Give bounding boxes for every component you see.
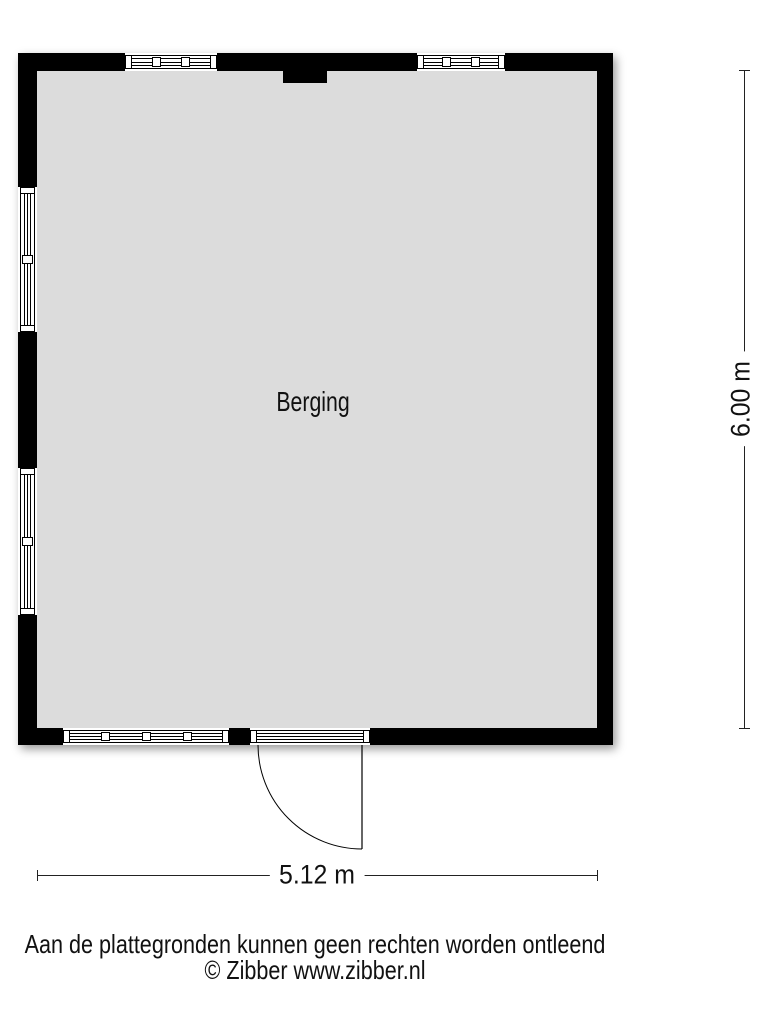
dimension-tick bbox=[37, 870, 38, 881]
window-end-cap bbox=[20, 325, 35, 332]
window-mullion bbox=[152, 57, 161, 67]
width-dimension-label: 5.12 m bbox=[270, 860, 364, 891]
door-swing-arc bbox=[258, 745, 362, 849]
window-frame bbox=[417, 55, 505, 69]
window-end-cap bbox=[222, 730, 229, 743]
dimension-tick bbox=[739, 70, 750, 71]
disclaimer-text: Aan de plattegronden kunnen geen rechten… bbox=[0, 931, 630, 983]
window-mullion bbox=[471, 57, 480, 67]
window-top-left bbox=[125, 53, 217, 71]
dimension-tick bbox=[739, 728, 750, 729]
door-end-cap bbox=[250, 730, 257, 743]
window-frame bbox=[20, 187, 35, 332]
window-mullion bbox=[181, 57, 190, 67]
window-left-lower bbox=[18, 468, 37, 615]
window-mullion bbox=[142, 732, 151, 741]
window-glass-lines bbox=[423, 56, 499, 68]
door-leaf-strip bbox=[250, 728, 370, 745]
window-mullion bbox=[101, 732, 110, 741]
room-label: Berging bbox=[276, 386, 349, 418]
window-end-cap bbox=[63, 730, 70, 743]
window-left-upper bbox=[18, 187, 37, 332]
window-end-cap bbox=[20, 187, 35, 194]
dimension-tick bbox=[597, 870, 598, 881]
window-mullion bbox=[442, 57, 451, 67]
window-frame bbox=[125, 55, 217, 69]
window-frame bbox=[63, 730, 229, 743]
wall-protrusion bbox=[283, 53, 327, 83]
window-end-cap bbox=[20, 468, 35, 475]
window-glass-lines bbox=[131, 56, 211, 68]
window-end-cap bbox=[125, 55, 132, 69]
window-end-cap bbox=[20, 608, 35, 615]
disclaimer-line-2: © Zibber www.zibber.nl bbox=[0, 957, 630, 983]
window-end-cap bbox=[210, 55, 217, 69]
height-dimension-label: 6.00 m bbox=[726, 352, 757, 446]
floor-plan-canvas: Berging 5.12 m 6.00 m Aan de plattegrond… bbox=[0, 0, 768, 1024]
disclaimer-line-1: Aan de plattegronden kunnen geen rechten… bbox=[0, 931, 630, 957]
window-top-right bbox=[417, 53, 505, 71]
window-mullion bbox=[22, 537, 33, 546]
window-bottom bbox=[63, 728, 229, 745]
door-end-cap bbox=[363, 730, 370, 743]
window-end-cap bbox=[498, 55, 505, 69]
window-mullion bbox=[183, 732, 192, 741]
door-frame bbox=[250, 730, 370, 743]
window-frame bbox=[20, 468, 35, 615]
door-glass-lines bbox=[256, 731, 364, 742]
window-mullion bbox=[22, 255, 33, 264]
window-end-cap bbox=[417, 55, 424, 69]
